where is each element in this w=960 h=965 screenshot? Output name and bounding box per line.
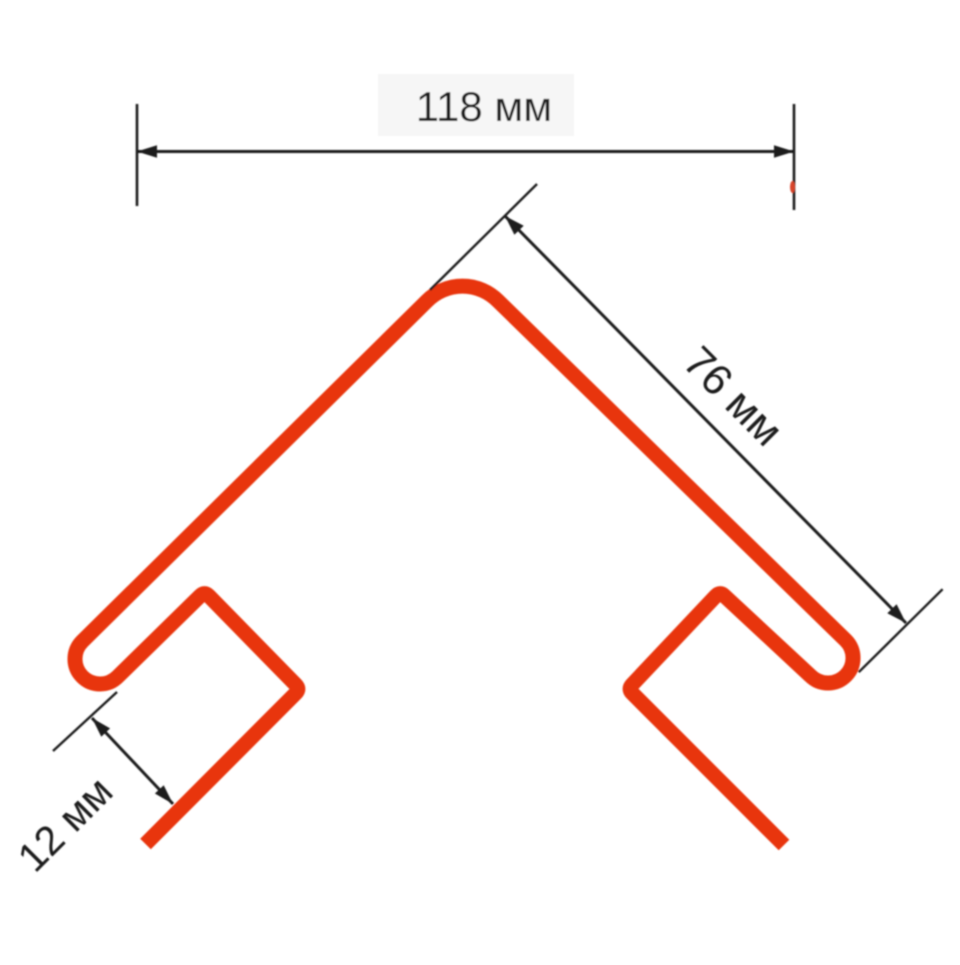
svg-text:118 мм: 118 мм: [416, 83, 552, 130]
